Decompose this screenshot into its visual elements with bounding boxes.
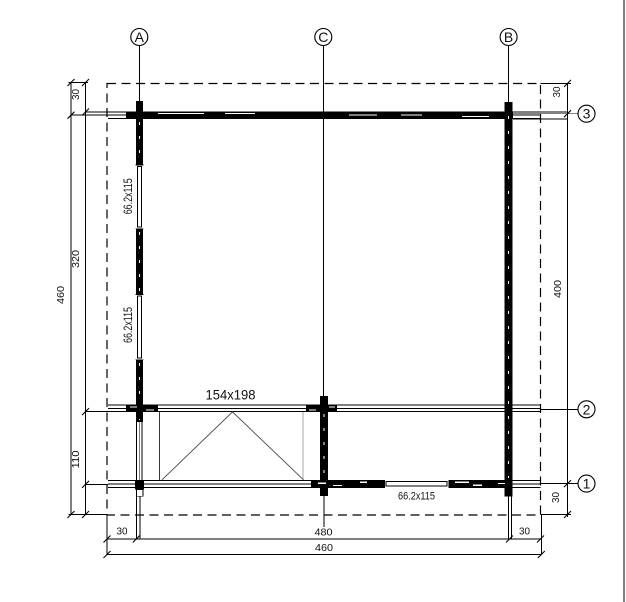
svg-text:400: 400 [552, 280, 564, 298]
svg-text:30: 30 [550, 492, 562, 503]
svg-text:460: 460 [315, 542, 333, 554]
svg-text:66.2x115: 66.2x115 [123, 178, 135, 214]
svg-text:30: 30 [519, 526, 530, 538]
svg-text:154x198: 154x198 [206, 387, 256, 403]
svg-text:A: A [135, 29, 145, 45]
svg-text:110: 110 [70, 450, 82, 468]
svg-text:30: 30 [117, 526, 128, 538]
svg-text:2: 2 [583, 401, 591, 417]
svg-text:1: 1 [583, 476, 591, 492]
svg-text:320: 320 [70, 250, 82, 268]
svg-text:30: 30 [70, 89, 82, 100]
svg-text:30: 30 [551, 86, 563, 97]
svg-text:3: 3 [583, 106, 591, 122]
svg-text:66.2x115: 66.2x115 [123, 307, 135, 343]
svg-text:B: B [504, 29, 513, 45]
svg-text:460: 460 [55, 286, 67, 304]
svg-text:480: 480 [315, 527, 333, 539]
svg-text:66.2x115: 66.2x115 [398, 491, 435, 503]
svg-text:C: C [318, 29, 328, 45]
